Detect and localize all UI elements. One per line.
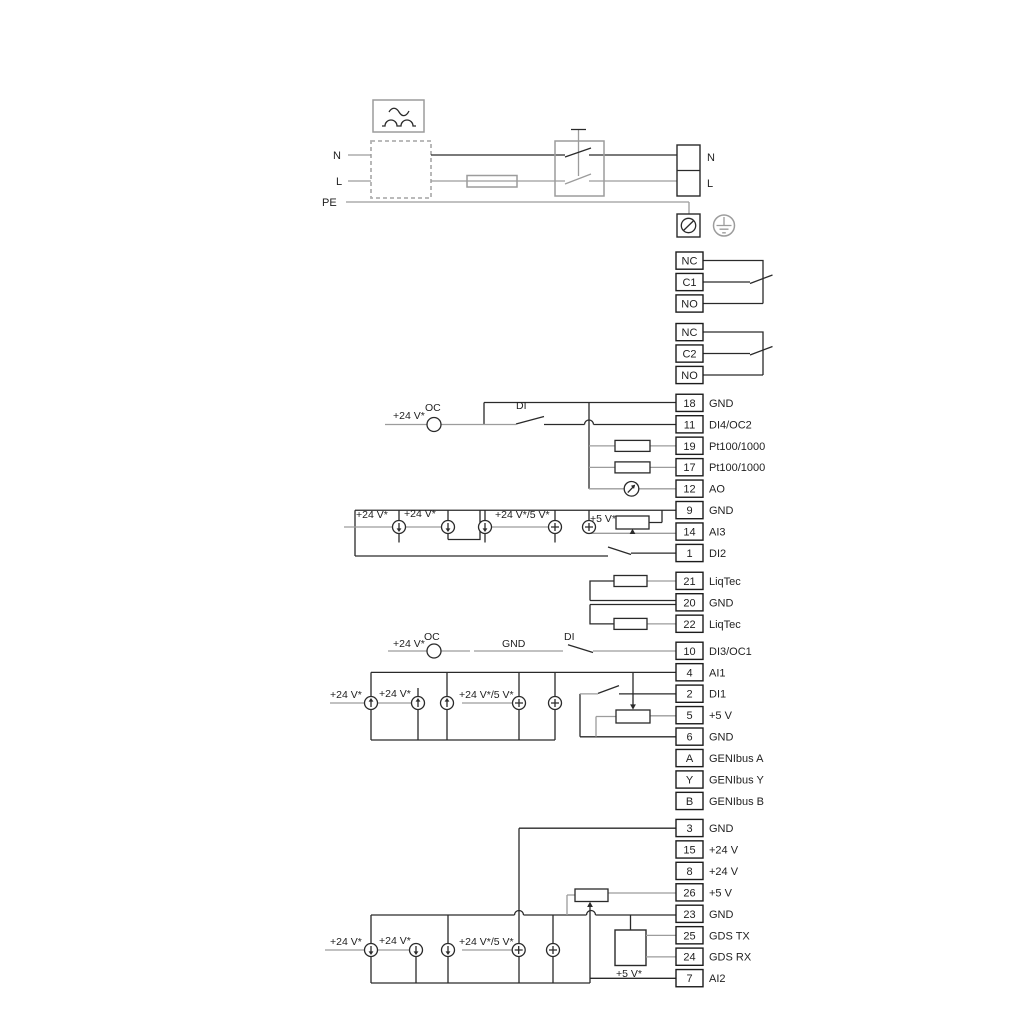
io-strip-a: 18GND11DI4/OC219Pt100/100017Pt100/100012… <box>676 394 765 561</box>
terminal-number: 11 <box>684 419 695 431</box>
terminal-label: GND <box>709 732 734 744</box>
supply-label: +5 V* <box>616 968 642 980</box>
current-source-icon <box>393 521 406 534</box>
relay-strip-2: NCC2NO <box>676 324 703 384</box>
potentiometer-icon <box>616 516 649 529</box>
terminal-number: 23 <box>683 909 695 921</box>
terminal-number: 10 <box>683 646 695 658</box>
ai2-cluster-wiring <box>325 828 676 983</box>
gnd-label: GND <box>502 638 526 650</box>
wiring-diagram-canvas: NCC1NO NCC2NO 18GND11DI4/OC219Pt100/1000… <box>0 0 1024 1024</box>
pe-label: PE <box>322 197 337 209</box>
terminal-number: 1 <box>686 548 692 560</box>
relay-cell-label: C2 <box>682 349 696 361</box>
di2-switch-blade <box>608 547 631 555</box>
ai1-cluster-wiring <box>330 672 676 740</box>
di4-pt100-ao-wiring <box>385 403 676 497</box>
main-switch-box <box>555 141 604 196</box>
relay-cell-label: NC <box>682 256 698 268</box>
current-source-icon <box>412 697 425 710</box>
di3-switch-blade <box>568 645 593 653</box>
terminal-label: AI3 <box>709 527 726 539</box>
terminal-label: AI1 <box>709 667 726 679</box>
line-label: L <box>336 176 342 188</box>
terminal-number: 25 <box>683 930 695 942</box>
terminal-label: +24 V <box>709 866 739 878</box>
terminal-number: 8 <box>686 866 692 878</box>
terminal-number: 21 <box>683 576 695 588</box>
di-label: DI <box>516 400 527 412</box>
terminal-label: DI3/OC1 <box>709 646 752 658</box>
current-source-icon <box>479 521 492 534</box>
emc-enclosure-box <box>371 141 431 198</box>
pot-wiper-arrow <box>587 902 593 907</box>
neutral-terminal-label: N <box>707 152 715 164</box>
relay-cell-label: NO <box>681 299 698 311</box>
current-source-icon <box>410 944 423 957</box>
supply-label: +24 V*/5 V* <box>495 509 550 521</box>
relay-cell-label: NO <box>681 370 698 382</box>
oc-label: OC <box>424 631 440 643</box>
neutral-label: N <box>333 150 341 162</box>
potentiometer-icon <box>575 889 608 902</box>
terminal-label: GDS TX <box>709 930 750 942</box>
terminal-label: GND <box>709 505 734 517</box>
terminal-label: Pt100/1000 <box>709 462 765 474</box>
terminal-number: 4 <box>686 667 692 679</box>
liqtec-sensor-icon <box>614 618 647 629</box>
supply-label: +24 V* <box>379 688 411 700</box>
terminal-label: GND <box>709 823 734 835</box>
wire-hop <box>515 911 596 916</box>
supply-label: +24 V* <box>330 936 362 948</box>
terminal-number: Y <box>686 775 694 787</box>
pe-terminal-icon <box>677 214 700 237</box>
supply-label: +24 V* <box>393 410 425 422</box>
power-wires-gray <box>346 130 689 214</box>
wiring-diagram: NCC1NO NCC2NO 18GND11DI4/OC219Pt100/1000… <box>0 0 1024 1024</box>
terminal-number: 26 <box>683 887 695 899</box>
terminal-number: 3 <box>686 823 692 835</box>
line-terminal-label: L <box>707 178 713 190</box>
supply-label: +24 V* <box>404 508 436 520</box>
terminal-number: 18 <box>683 398 695 410</box>
supply-label: +5 V* <box>590 513 616 525</box>
terminal-number: 20 <box>683 597 695 609</box>
terminal-label: Pt100/1000 <box>709 441 765 453</box>
pt100-resistor-icon <box>615 462 650 473</box>
gds-module-box <box>615 930 646 966</box>
supply-label: +24 V*/5 V* <box>459 936 514 948</box>
terminal-label: GENIbus Y <box>709 775 764 787</box>
oc-label: OC <box>425 402 441 414</box>
terminal-number: 17 <box>683 462 695 474</box>
terminal-label: DI4/OC2 <box>709 419 752 431</box>
terminal-number: 14 <box>683 527 695 539</box>
terminal-number: 24 <box>683 952 695 964</box>
di3-wiring <box>388 644 676 658</box>
di-label: DI <box>564 631 575 643</box>
supply-label: +24 V* <box>379 935 411 947</box>
terminal-number: 2 <box>686 689 692 701</box>
current-source-icon <box>442 944 455 957</box>
io-strip-c: 3GND15+24 V8+24 V26+5 V23GND25GDS TX24GD… <box>676 819 752 986</box>
terminal-label: AO <box>709 484 725 496</box>
terminal-label: GND <box>709 398 734 410</box>
terminal-number: 7 <box>686 973 692 985</box>
current-source-icon <box>365 944 378 957</box>
relay2-contact <box>703 332 773 375</box>
supply-label: +24 V*/5 V* <box>459 689 514 701</box>
open-collector-icon <box>427 644 441 658</box>
open-collector-icon <box>427 418 441 432</box>
terminal-label: DI2 <box>709 548 726 560</box>
liqtec-wiring <box>590 576 676 630</box>
current-source-icon <box>512 944 525 957</box>
terminal-label: LiqTec <box>709 619 741 631</box>
current-source-icon <box>442 521 455 534</box>
supply-label: +24 V* <box>330 689 362 701</box>
terminal-label: GND <box>709 909 734 921</box>
terminal-label: LiqTec <box>709 576 741 588</box>
mains-filter-icon <box>373 100 424 132</box>
relay-cell-label: NC <box>682 327 698 339</box>
relay1-contact <box>703 261 773 304</box>
supply-label: +24 V* <box>356 509 388 521</box>
terminal-label: DI1 <box>709 689 726 701</box>
relay2-contact-blade <box>750 347 773 356</box>
power-section <box>346 100 735 237</box>
terminal-label: GND <box>709 597 734 609</box>
earth-icon <box>714 215 735 236</box>
di1-switch-blade <box>598 686 619 694</box>
terminal-label: +5 V <box>709 710 733 722</box>
current-source-icons <box>365 521 596 957</box>
terminal-number: 5 <box>686 710 692 722</box>
terminal-number: 6 <box>686 732 692 744</box>
supply-label: +24 V* <box>393 638 425 650</box>
current-source-icon <box>549 521 562 534</box>
current-source-icon <box>365 697 378 710</box>
di4-switch-blade <box>516 417 544 425</box>
relay-cell-label: C1 <box>682 277 696 289</box>
terminal-number: 15 <box>683 844 695 856</box>
terminal-number: B <box>686 796 693 808</box>
terminal-number: 19 <box>683 441 695 453</box>
ao-meter-icon <box>624 482 639 497</box>
current-source-icon <box>441 697 454 710</box>
relay-strip-1: NCC1NO <box>676 252 703 312</box>
current-source-icon <box>549 697 562 710</box>
terminal-number: 12 <box>683 484 695 496</box>
terminal-label: +5 V <box>709 887 733 899</box>
terminal-label: GENIbus B <box>709 796 764 808</box>
relay1-contact-blade <box>750 275 773 284</box>
terminal-number: A <box>686 753 694 765</box>
current-source-icon <box>513 697 526 710</box>
terminal-label: GDS RX <box>709 952 752 964</box>
pt100-resistor-icon <box>615 440 650 451</box>
supply-terminal-block <box>677 145 700 196</box>
liqtec-strip: 21LiqTec20GND22LiqTec <box>676 572 741 632</box>
liqtec-sensor-icon <box>614 576 647 587</box>
potentiometer-icon <box>616 710 650 723</box>
current-source-icon <box>547 944 560 957</box>
terminal-label: GENIbus A <box>709 753 764 765</box>
power-wires-dark <box>431 130 677 158</box>
pot-wiper-arrow <box>630 704 636 709</box>
terminal-number: 9 <box>686 505 692 517</box>
io-strip-b: 10DI3/OC14AI12DI15+5 V6GNDAGENIbus AYGEN… <box>676 642 764 809</box>
terminal-number: 22 <box>683 619 695 631</box>
terminal-label: AI2 <box>709 973 726 985</box>
terminal-label: +24 V <box>709 844 739 856</box>
